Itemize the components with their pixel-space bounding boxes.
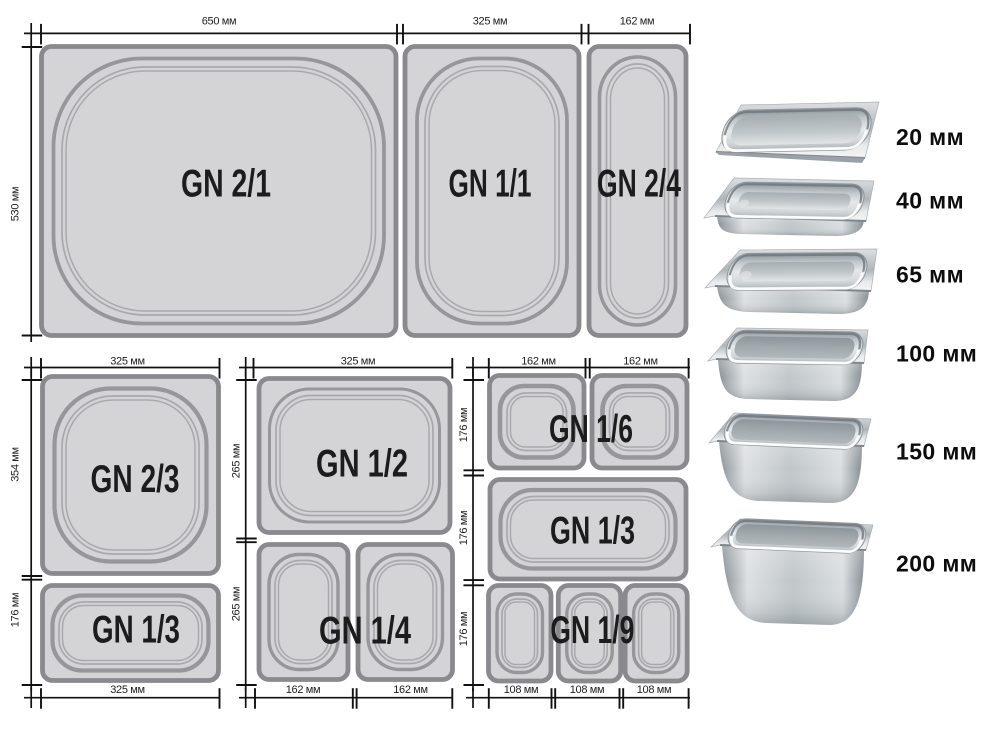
svg-text:GN 1/6: GN 1/6 (549, 408, 633, 451)
svg-text:GN 2/4: GN 2/4 (597, 163, 681, 206)
svg-text:176 мм: 176 мм (458, 612, 470, 646)
svg-text:GN 1/3: GN 1/3 (550, 510, 635, 553)
svg-text:325 мм: 325 мм (110, 356, 144, 368)
svg-text:150 мм: 150 мм (896, 439, 977, 465)
svg-text:176 мм: 176 мм (10, 593, 22, 627)
svg-text:650 мм: 650 мм (202, 16, 236, 28)
svg-text:162 мм: 162 мм (393, 684, 427, 696)
svg-text:265 мм: 265 мм (230, 444, 242, 478)
svg-text:GN 1/9: GN 1/9 (550, 609, 634, 652)
svg-text:176 мм: 176 мм (458, 511, 470, 545)
svg-text:530 мм: 530 мм (10, 187, 22, 221)
svg-text:200 мм: 200 мм (896, 551, 977, 577)
svg-text:354 мм: 354 мм (10, 447, 22, 481)
svg-text:108 мм: 108 мм (504, 684, 538, 696)
svg-text:162 мм: 162 мм (521, 356, 555, 368)
svg-text:GN 1/3: GN 1/3 (92, 609, 180, 652)
svg-text:GN 1/2: GN 1/2 (316, 443, 408, 486)
svg-text:GN 2/3: GN 2/3 (91, 458, 180, 501)
svg-text:265 мм: 265 мм (230, 587, 242, 621)
svg-text:108 мм: 108 мм (637, 684, 671, 696)
svg-text:100 мм: 100 мм (896, 341, 977, 367)
svg-text:325 мм: 325 мм (110, 684, 144, 696)
svg-text:325 мм: 325 мм (473, 16, 507, 28)
svg-text:162 мм: 162 мм (623, 356, 657, 368)
svg-text:40 мм: 40 мм (896, 188, 964, 214)
svg-text:162 мм: 162 мм (620, 16, 654, 28)
svg-text:65 мм: 65 мм (896, 262, 964, 288)
svg-text:20 мм: 20 мм (896, 124, 964, 150)
svg-text:108 мм: 108 мм (570, 684, 604, 696)
svg-text:GN 2/1: GN 2/1 (181, 163, 271, 206)
svg-text:325 мм: 325 мм (341, 356, 375, 368)
svg-text:176 мм: 176 мм (458, 408, 470, 442)
svg-text:GN 1/1: GN 1/1 (449, 163, 532, 206)
svg-text:162 мм: 162 мм (286, 684, 320, 696)
svg-text:GN 1/4: GN 1/4 (319, 610, 411, 653)
